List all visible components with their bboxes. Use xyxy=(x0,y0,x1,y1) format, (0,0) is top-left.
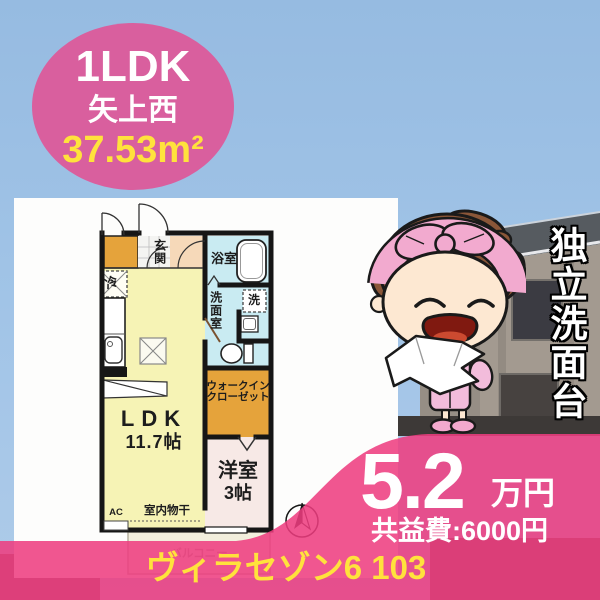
area-badge: 1LDK 矢上西 37.53m² xyxy=(32,23,234,190)
listing-promo-image: 玄関 浴室 洗面室 洗 冷 LDK 11.7帖 ウォークイン クローゼット 洋室… xyxy=(0,0,600,600)
rent-value: 5.2 xyxy=(360,441,464,520)
badge-layout-type: 1LDK xyxy=(76,45,191,89)
common-fee: 共益費:6000円 xyxy=(371,518,548,545)
badge-floor-area: 37.53m² xyxy=(62,131,204,169)
rent-unit: 万円 xyxy=(491,477,555,509)
property-name: ヴィラセゾン6 103 xyxy=(146,551,427,584)
badge-area-name: 矢上西 xyxy=(88,96,178,126)
